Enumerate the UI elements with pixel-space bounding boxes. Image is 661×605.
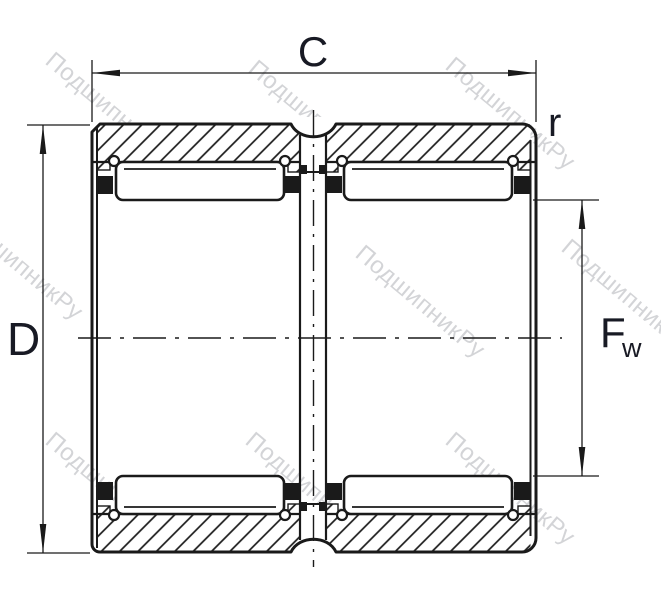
ring-lip <box>97 162 110 170</box>
ring-center-rib <box>326 162 338 172</box>
arrowhead-up <box>579 200 586 229</box>
arrowhead-left <box>92 70 120 77</box>
label-width-c: C <box>298 28 328 75</box>
bearing-cross-section-drawing: ПодшипникРу ПодшипникРу ПодшипникРу Подш… <box>0 0 661 605</box>
ring-lip <box>518 162 531 170</box>
ring-center-rib <box>326 504 338 514</box>
label-raceway-w-subscript: w <box>621 333 642 363</box>
roller-top-left <box>116 162 284 200</box>
roller-bottom-right <box>344 476 512 514</box>
roller-bottom-left <box>116 476 284 514</box>
roller-top-right <box>344 162 512 200</box>
bearing-drawing-page: ПодшипникРу ПодшипникРу ПодшипникРу Подш… <box>0 0 661 605</box>
label-corner-radius-r: r <box>548 101 561 145</box>
ring-lip <box>97 506 110 514</box>
arrowhead-down <box>40 524 47 553</box>
watermark-text: ПодшипникРу <box>350 240 490 364</box>
arrowhead-right <box>508 70 536 77</box>
ring-lip <box>518 506 531 514</box>
watermark-text: ПодшипникРу <box>0 202 88 326</box>
label-outer-diameter-d: D <box>7 313 40 365</box>
arrowhead-up <box>40 125 47 154</box>
arrowhead-down <box>579 447 586 476</box>
